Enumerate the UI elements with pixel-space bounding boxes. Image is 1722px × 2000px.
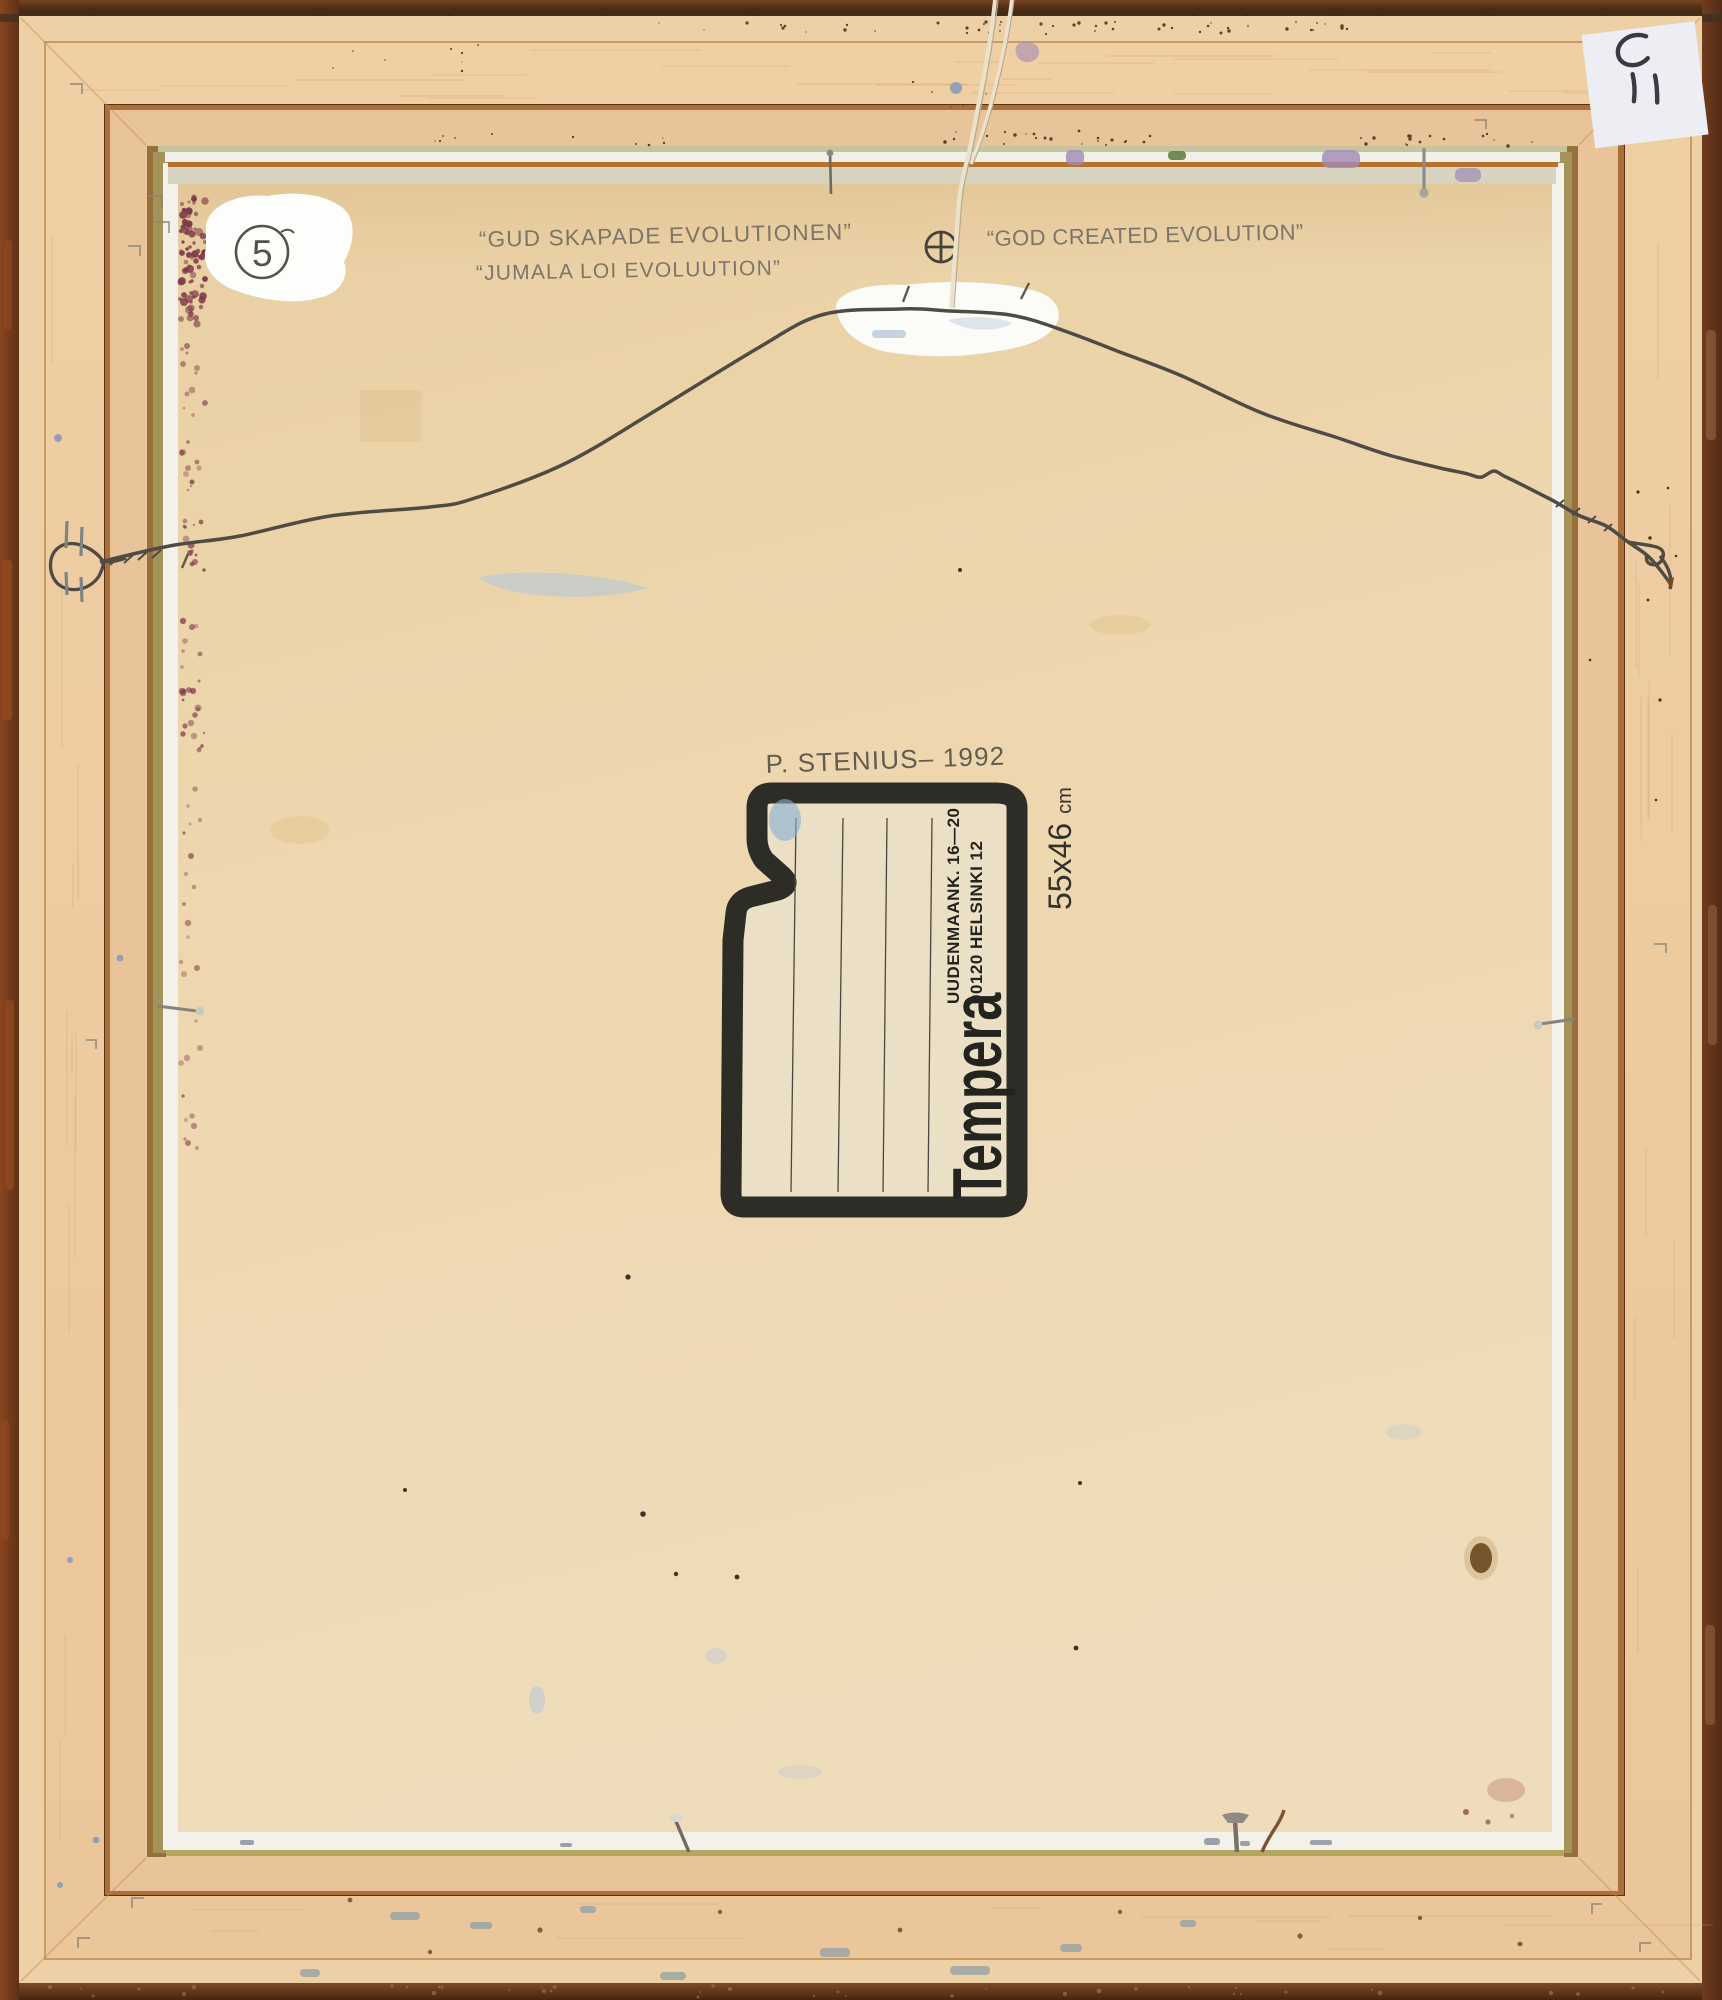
svg-text:5: 5 (252, 233, 273, 274)
svg-text:Tempera: Tempera (938, 992, 1016, 1199)
svg-text:00120 HELSINKI 12: 00120 HELSINKI 12 (967, 841, 986, 1004)
svg-text:UUDENMAANK. 16—20: UUDENMAANK. 16—20 (944, 808, 963, 1004)
